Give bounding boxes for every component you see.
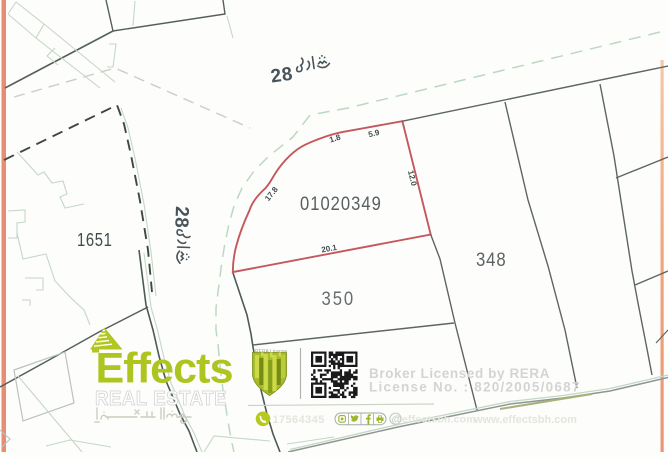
svg-text:@: @ bbox=[392, 414, 402, 426]
svg-text:REAL ESTATE: REAL ESTATE bbox=[95, 388, 227, 410]
svg-text:Effects: Effects bbox=[96, 345, 233, 393]
svg-text:effectsbh.com: effectsbh.com bbox=[402, 414, 476, 426]
svg-text:01020349: 01020349 bbox=[300, 193, 382, 215]
svg-text:1651: 1651 bbox=[77, 229, 112, 250]
svg-text:License No. : 820/2005/0687: License No. : 820/2005/0687 bbox=[369, 380, 581, 395]
svg-text:28: 28 bbox=[269, 64, 294, 88]
svg-text:28: 28 bbox=[170, 206, 192, 229]
svg-text:17564345: 17564345 bbox=[273, 414, 325, 426]
svg-text:348: 348 bbox=[476, 249, 507, 270]
svg-text:www.effectsbh.com: www.effectsbh.com bbox=[473, 414, 577, 426]
svg-text:350: 350 bbox=[322, 288, 356, 309]
